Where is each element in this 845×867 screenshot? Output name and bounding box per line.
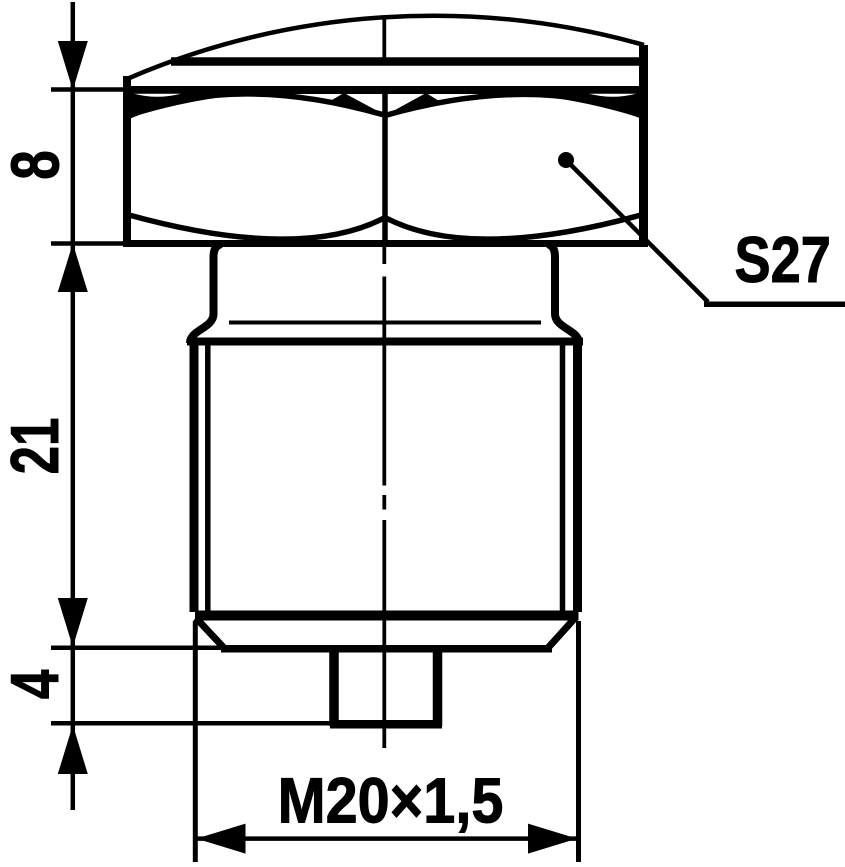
svg-text:S27: S27 [735, 224, 831, 297]
svg-text:4: 4 [0, 670, 73, 700]
svg-text:8: 8 [0, 150, 73, 180]
svg-text:21: 21 [0, 418, 73, 475]
svg-text:M20×1,5: M20×1,5 [278, 765, 504, 836]
